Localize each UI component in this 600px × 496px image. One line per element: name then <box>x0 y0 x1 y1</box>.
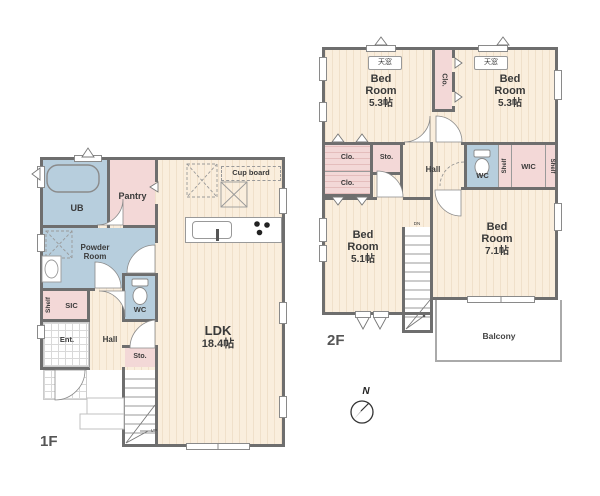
room-label-ent: Ent. <box>47 334 87 346</box>
casement-marks <box>357 318 386 329</box>
room-label-bedroom4: BedRoom7.1帖 <box>468 218 526 260</box>
room-label-wc1: WC <box>125 304 155 316</box>
room-label-bedroom2: BedRoom5.3帖 <box>481 70 539 112</box>
window <box>319 218 327 242</box>
compass-north-label: N <box>358 386 374 398</box>
wall <box>122 319 158 322</box>
room-label-bedroom3: BedRoom5.1帖 <box>334 226 392 268</box>
wall <box>432 109 455 112</box>
room-label-shelf-1f: Shelf <box>43 290 55 320</box>
wall <box>322 197 377 200</box>
wall <box>322 142 405 145</box>
wall <box>155 273 158 320</box>
floor2-label: 2F <box>327 332 357 350</box>
window <box>74 155 102 162</box>
room-label-ldk: LDK18.4帖 <box>180 322 256 352</box>
wall <box>155 157 158 182</box>
stairs-dn-label: DN <box>409 220 425 228</box>
window <box>319 57 327 81</box>
stairs-up-label: UP <box>146 427 162 435</box>
window <box>279 188 287 214</box>
room-label-closet1: Clo. <box>325 152 370 164</box>
room-label-closet-mid: Clo. <box>438 62 450 99</box>
wall <box>122 273 158 276</box>
window <box>319 245 327 262</box>
room-label-shelf-left: Shelf <box>499 151 511 181</box>
unit-bath <box>43 160 107 225</box>
room-label-shelf-right: Shelf <box>546 151 558 181</box>
room-label-wc2: WC <box>467 170 498 182</box>
wall <box>370 172 400 175</box>
window <box>37 166 45 188</box>
porch-floor <box>43 370 87 400</box>
closet-divider <box>325 171 370 172</box>
wall <box>325 194 373 197</box>
wall <box>461 142 558 145</box>
room-label-pantry: Pantry <box>110 190 155 202</box>
room-label-closet2: Clo. <box>325 178 370 190</box>
balcony-label: Balcony <box>464 330 534 344</box>
wall <box>40 225 98 228</box>
wall <box>87 288 90 322</box>
wall <box>40 367 90 370</box>
room-label-sto1: Sto. <box>125 351 155 363</box>
sliding-window <box>467 296 535 303</box>
wall <box>452 50 455 58</box>
room-label-sic: SIC <box>56 300 87 312</box>
window <box>279 302 287 324</box>
wall <box>123 225 158 228</box>
window <box>37 234 45 252</box>
wall <box>122 367 125 447</box>
wall <box>402 330 433 333</box>
floor1-label: 1F <box>40 433 70 451</box>
wall <box>403 197 433 200</box>
window <box>554 70 562 100</box>
window <box>37 325 45 339</box>
sliding-window <box>186 443 250 450</box>
exterior-corner <box>87 370 122 400</box>
room-label-powder: PowderRoom <box>60 242 130 264</box>
window <box>554 203 562 231</box>
room-label-hall2: Hall <box>415 164 451 176</box>
wall <box>452 72 455 92</box>
room-label-wic: WIC <box>512 161 545 173</box>
window <box>366 45 396 52</box>
window <box>279 396 287 418</box>
wall <box>402 227 405 333</box>
window <box>478 45 508 52</box>
compass-icon <box>351 401 373 423</box>
window <box>355 311 371 318</box>
window <box>319 102 327 122</box>
floorplan-canvas: UB Pantry PowderRoom Shelf SIC WC Ent. H… <box>0 0 600 496</box>
wall <box>322 47 558 50</box>
room-label-bedroom1: BedRoom5.3帖 <box>352 70 410 112</box>
wall <box>400 145 403 197</box>
room-label-hall1: Hall <box>90 334 130 346</box>
kitchen-sink <box>192 221 232 239</box>
room-label-ub: UB <box>55 202 99 214</box>
wall <box>432 50 435 109</box>
cupboard-label: Cup board <box>221 166 281 181</box>
window <box>373 311 389 318</box>
wall <box>155 204 158 243</box>
skylight-label-2: 天窓 <box>474 56 508 70</box>
room-label-sto2: Sto. <box>373 152 400 164</box>
wall <box>461 187 558 190</box>
skylight-label-1: 天窓 <box>368 56 402 70</box>
